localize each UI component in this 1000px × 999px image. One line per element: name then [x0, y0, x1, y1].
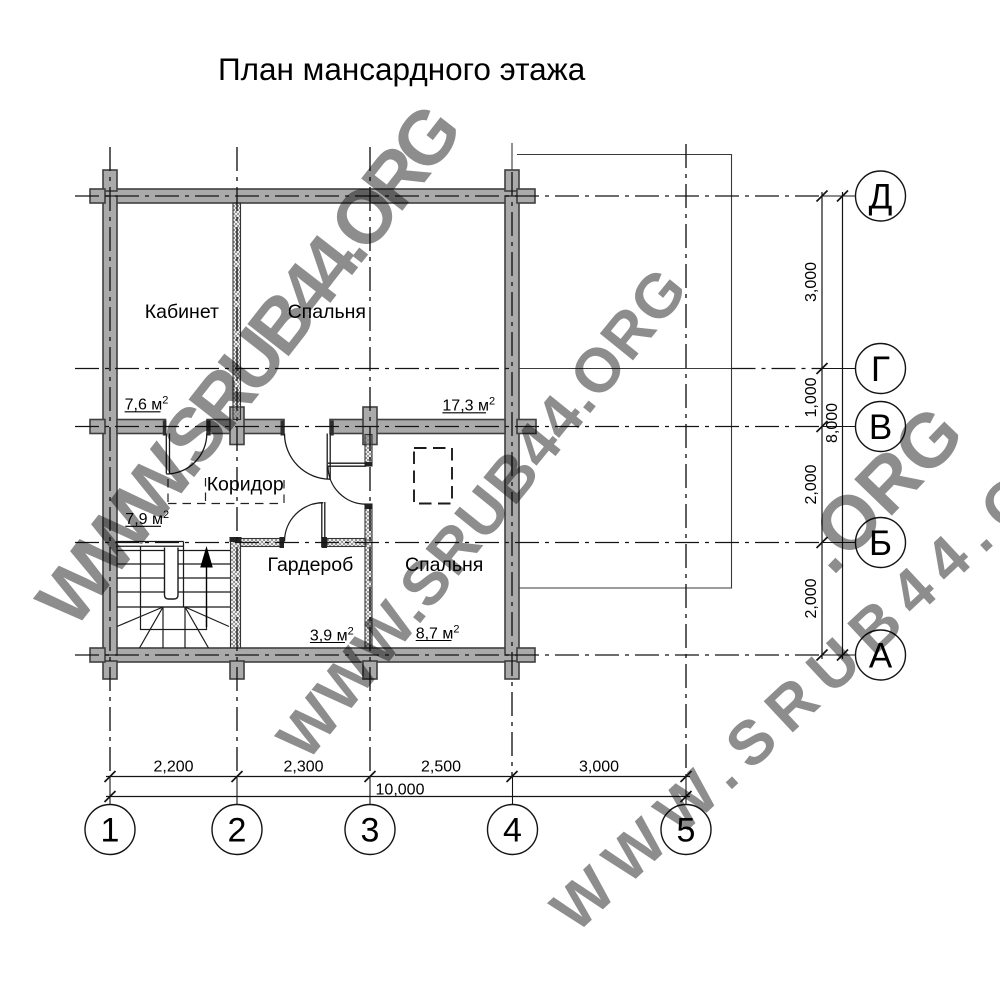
svg-text:Коридор: Коридор	[207, 474, 284, 496]
svg-text:1: 1	[101, 812, 120, 850]
svg-text:2,500: 2,500	[421, 759, 461, 776]
svg-text:Кабинет: Кабинет	[145, 301, 219, 323]
svg-text:17,3 м2: 17,3 м2	[442, 396, 495, 415]
svg-text:8,000: 8,000	[824, 403, 841, 443]
svg-text:3: 3	[361, 812, 380, 850]
svg-text:2,200: 2,200	[153, 759, 193, 776]
svg-text:10,000: 10,000	[376, 782, 425, 799]
svg-text:Д: Д	[869, 178, 893, 217]
svg-text:1,000: 1,000	[803, 377, 820, 417]
svg-text:2: 2	[228, 812, 247, 850]
svg-text:Гардероб: Гардероб	[268, 554, 354, 576]
svg-text:3,000: 3,000	[579, 759, 619, 776]
svg-text:4: 4	[503, 812, 522, 850]
svg-text:План мансардного этажа: План мансардного этажа	[218, 51, 586, 87]
svg-text:3,000: 3,000	[803, 262, 820, 302]
svg-text:2,000: 2,000	[803, 578, 820, 618]
svg-text:Г: Г	[871, 350, 890, 389]
